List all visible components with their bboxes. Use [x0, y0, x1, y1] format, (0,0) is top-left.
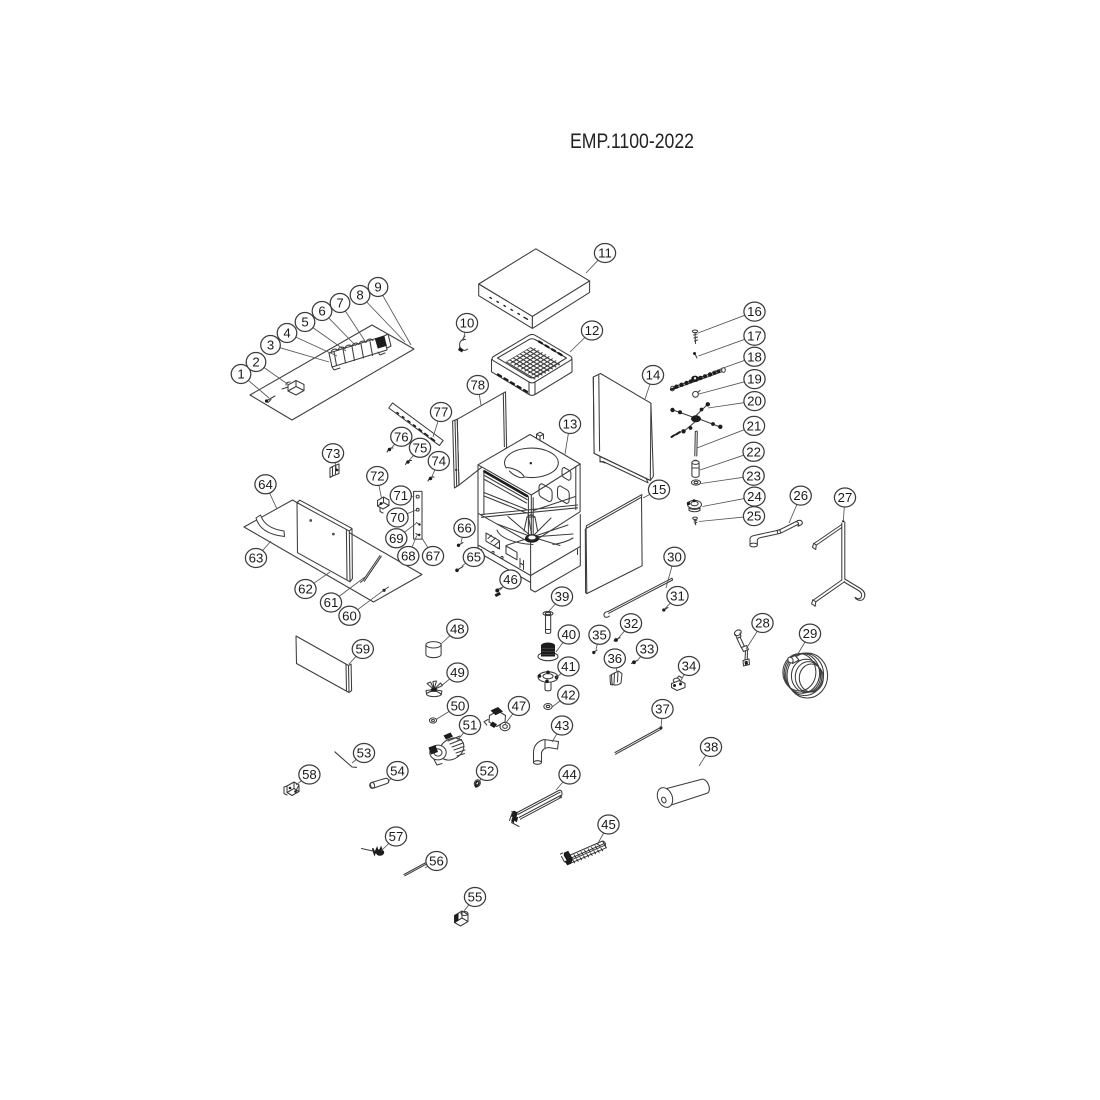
svg-text:18: 18 — [747, 349, 762, 364]
svg-text:33: 33 — [640, 641, 655, 656]
svg-text:77: 77 — [434, 405, 449, 420]
svg-text:63: 63 — [249, 551, 264, 566]
svg-text:44: 44 — [562, 767, 577, 782]
svg-text:45: 45 — [601, 817, 616, 832]
svg-text:68: 68 — [401, 549, 416, 564]
svg-text:26: 26 — [793, 488, 808, 503]
svg-text:37: 37 — [655, 702, 670, 717]
svg-text:64: 64 — [258, 477, 273, 492]
svg-text:78: 78 — [470, 378, 485, 393]
svg-text:7: 7 — [336, 296, 343, 311]
svg-text:34: 34 — [682, 659, 697, 674]
svg-text:41: 41 — [561, 659, 576, 674]
svg-text:25: 25 — [747, 509, 762, 524]
svg-text:17: 17 — [747, 328, 762, 343]
svg-text:6: 6 — [318, 304, 325, 319]
svg-text:51: 51 — [463, 718, 478, 733]
svg-text:35: 35 — [592, 627, 607, 642]
svg-text:40: 40 — [561, 627, 576, 642]
svg-text:2: 2 — [252, 355, 259, 370]
svg-text:30: 30 — [667, 549, 682, 564]
svg-text:59: 59 — [355, 642, 370, 657]
svg-text:11: 11 — [598, 246, 612, 261]
svg-text:67: 67 — [426, 549, 441, 564]
svg-text:55: 55 — [468, 890, 483, 905]
svg-text:62: 62 — [298, 582, 313, 597]
svg-text:14: 14 — [646, 368, 661, 383]
svg-text:9: 9 — [374, 280, 381, 295]
svg-text:4: 4 — [283, 326, 290, 341]
svg-text:60: 60 — [342, 608, 357, 623]
svg-text:72: 72 — [370, 469, 385, 484]
svg-text:10: 10 — [460, 316, 475, 331]
svg-text:66: 66 — [457, 521, 472, 536]
svg-text:74: 74 — [431, 454, 446, 469]
svg-text:8: 8 — [356, 288, 363, 303]
svg-text:21: 21 — [747, 419, 762, 434]
svg-text:71: 71 — [393, 488, 408, 503]
svg-text:53: 53 — [357, 746, 372, 761]
svg-text:22: 22 — [746, 444, 761, 459]
svg-text:43: 43 — [555, 718, 570, 733]
svg-text:13: 13 — [563, 417, 578, 432]
svg-text:49: 49 — [450, 665, 465, 680]
svg-text:50: 50 — [451, 699, 466, 714]
svg-text:5: 5 — [301, 315, 308, 330]
svg-text:38: 38 — [704, 740, 719, 755]
svg-text:48: 48 — [450, 621, 465, 636]
svg-text:19: 19 — [747, 372, 762, 387]
svg-text:75: 75 — [413, 440, 428, 455]
svg-text:20: 20 — [747, 394, 762, 409]
svg-text:24: 24 — [747, 489, 762, 504]
svg-text:47: 47 — [512, 699, 527, 714]
svg-text:28: 28 — [755, 616, 770, 631]
svg-text:73: 73 — [326, 446, 341, 461]
svg-text:56: 56 — [429, 854, 444, 869]
svg-text:54: 54 — [390, 764, 405, 779]
svg-text:31: 31 — [670, 589, 685, 604]
svg-text:12: 12 — [585, 323, 600, 338]
svg-text:61: 61 — [324, 595, 339, 610]
svg-text:16: 16 — [747, 304, 762, 319]
svg-text:36: 36 — [607, 651, 622, 666]
svg-text:1: 1 — [237, 367, 244, 382]
svg-text:3: 3 — [267, 338, 274, 353]
svg-text:76: 76 — [394, 429, 409, 444]
svg-text:39: 39 — [555, 589, 570, 604]
svg-text:42: 42 — [561, 687, 576, 702]
svg-text:32: 32 — [624, 616, 639, 631]
svg-text:46: 46 — [503, 572, 518, 587]
svg-text:65: 65 — [466, 550, 481, 565]
svg-text:23: 23 — [746, 468, 761, 483]
svg-text:15: 15 — [652, 482, 667, 497]
svg-text:69: 69 — [389, 531, 404, 546]
svg-text:EMP.1100-2022: EMP.1100-2022 — [570, 130, 694, 153]
svg-text:57: 57 — [389, 829, 404, 844]
svg-text:58: 58 — [302, 767, 317, 782]
svg-text:52: 52 — [480, 764, 495, 779]
svg-text:29: 29 — [803, 626, 818, 641]
svg-text:27: 27 — [838, 490, 853, 505]
svg-text:70: 70 — [390, 510, 405, 525]
